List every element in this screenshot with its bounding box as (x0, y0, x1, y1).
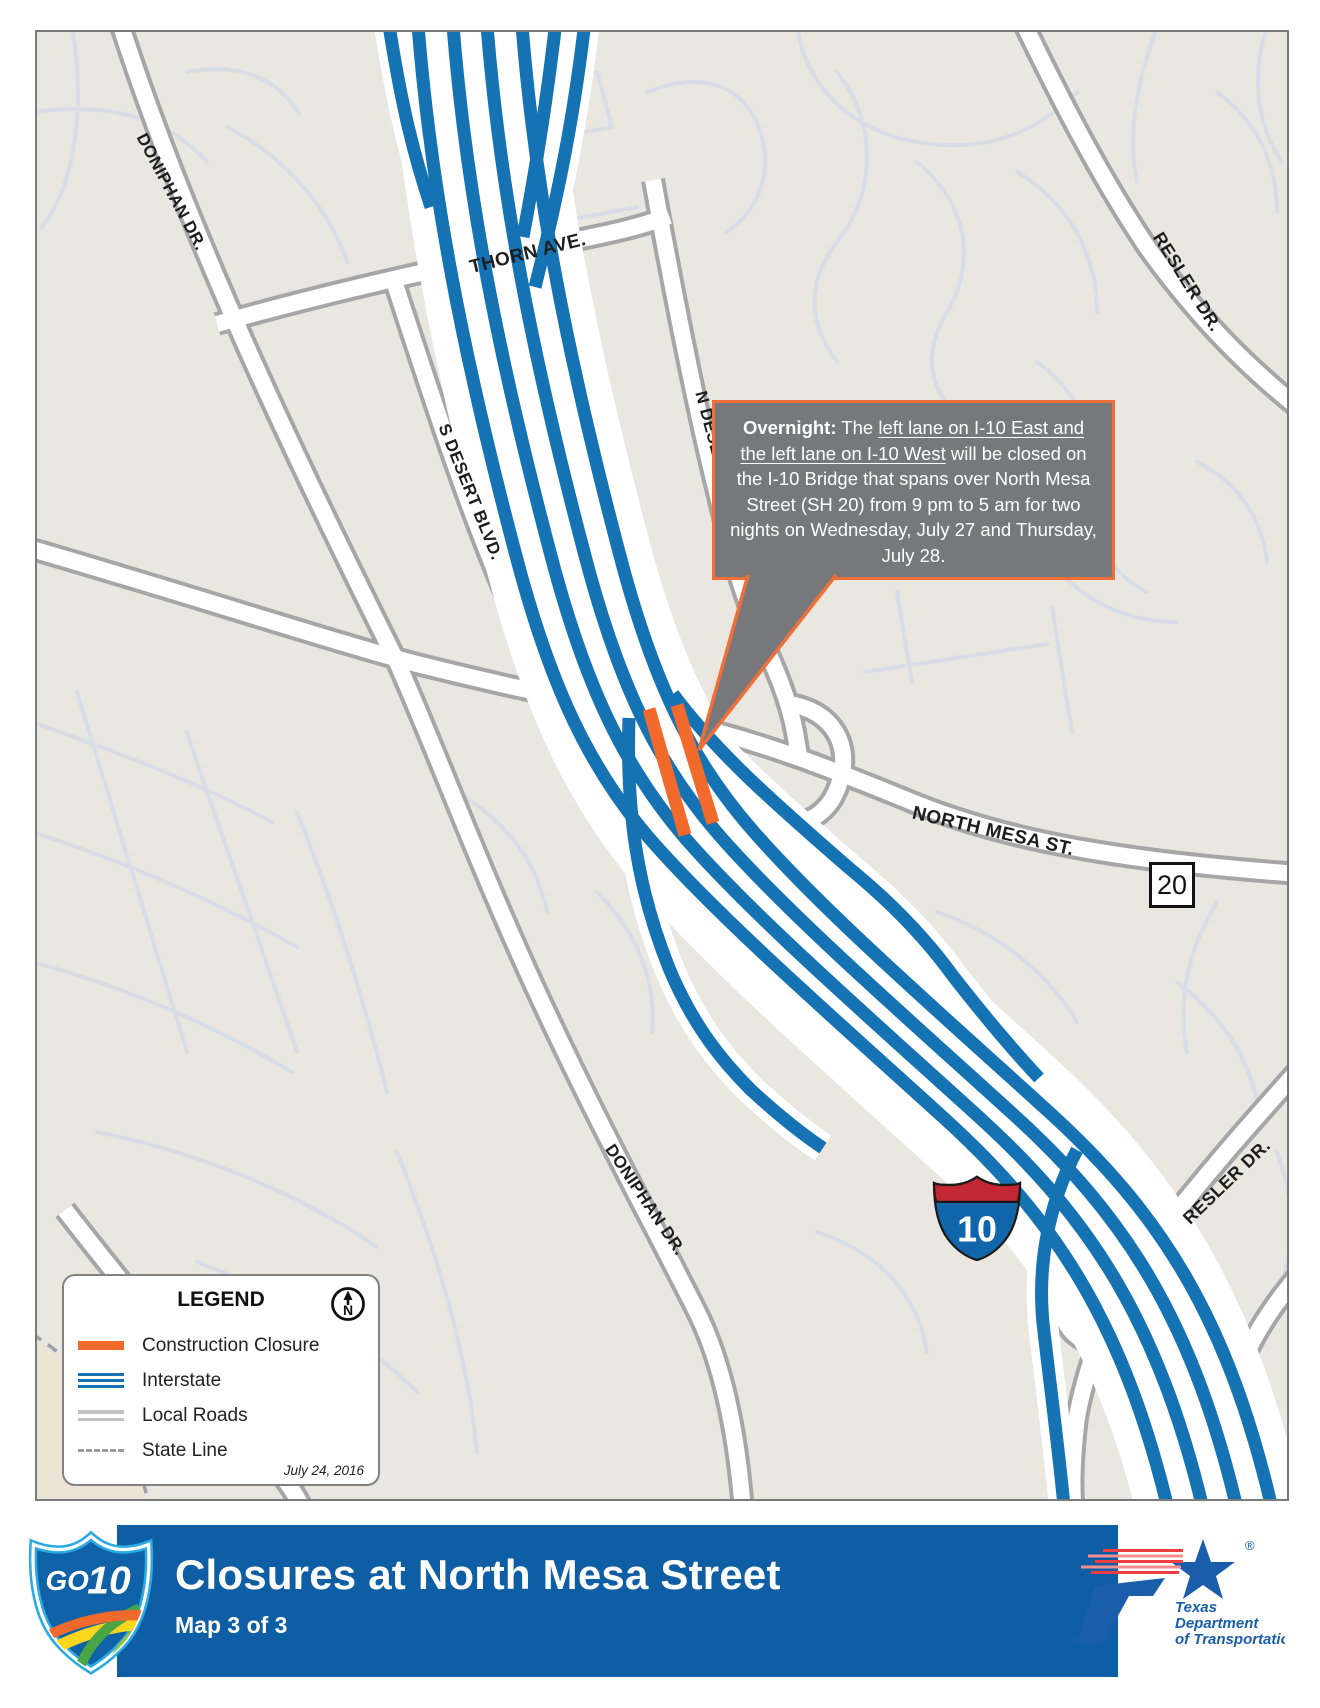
banner-subtitle: Map 3 of 3 (175, 1612, 781, 1639)
txdot-logo: ® Texas Department of Transportation (1033, 1538, 1285, 1654)
svg-text:Texas: Texas (1175, 1599, 1217, 1616)
legend-label: Interstate (142, 1370, 221, 1392)
txdot-reg-mark: ® (1245, 1538, 1255, 1553)
txdot-star (1171, 1539, 1235, 1599)
go10-logo: GO 10 (26, 1520, 156, 1686)
north-arrow-icon: N (330, 1286, 366, 1322)
legend-title: LEGEND (76, 1288, 366, 1312)
go10-ten: 10 (87, 1560, 131, 1603)
svg-text:of Transportation: of Transportation (1175, 1631, 1285, 1648)
closure-callout: Overnight: The left lane on I-10 East an… (712, 400, 1115, 580)
legend-label: Construction Closure (142, 1335, 319, 1357)
banner-text: Closures at North Mesa Street Map 3 of 3 (175, 1551, 781, 1639)
txdot-stripes (1081, 1549, 1183, 1574)
sh20-number: 20 (1157, 870, 1187, 901)
i10-number: 10 (957, 1209, 997, 1249)
svg-text:N: N (343, 1302, 353, 1318)
sh20-shield: 20 (1149, 862, 1195, 908)
legend-date: July 24, 2016 (284, 1463, 364, 1478)
svg-text:Department: Department (1175, 1615, 1259, 1632)
interstate-swatch (78, 1373, 124, 1389)
go10-go: GO (46, 1565, 90, 1596)
page: DONIPHAN DR. THORN AVE. S DESERT BLVD. N… (0, 0, 1320, 1708)
map-frame: DONIPHAN DR. THORN AVE. S DESERT BLVD. N… (35, 30, 1289, 1501)
callout-pre: The (837, 417, 879, 438)
legend-item-interstate: Interstate (78, 1363, 366, 1398)
callout-lead: Overnight: (743, 417, 837, 438)
closure-swatch (78, 1341, 124, 1350)
txdot-wordmark: Texas Department of Transportation (1175, 1599, 1285, 1648)
banner-title: Closures at North Mesa Street (175, 1551, 781, 1599)
local-roads-swatch (78, 1410, 124, 1421)
i10-shield: 10 (932, 1175, 1022, 1261)
legend-label: Local Roads (142, 1405, 248, 1427)
state-line-swatch (78, 1449, 124, 1452)
legend-item-closure: Construction Closure (78, 1328, 366, 1363)
txdot-flag (1077, 1578, 1165, 1643)
legend-label: State Line (142, 1440, 228, 1462)
i10-shield-crown (934, 1177, 1020, 1202)
legend-box: LEGEND N Construction Closure Interstate… (62, 1274, 380, 1486)
legend-item-local: Local Roads (78, 1398, 366, 1433)
